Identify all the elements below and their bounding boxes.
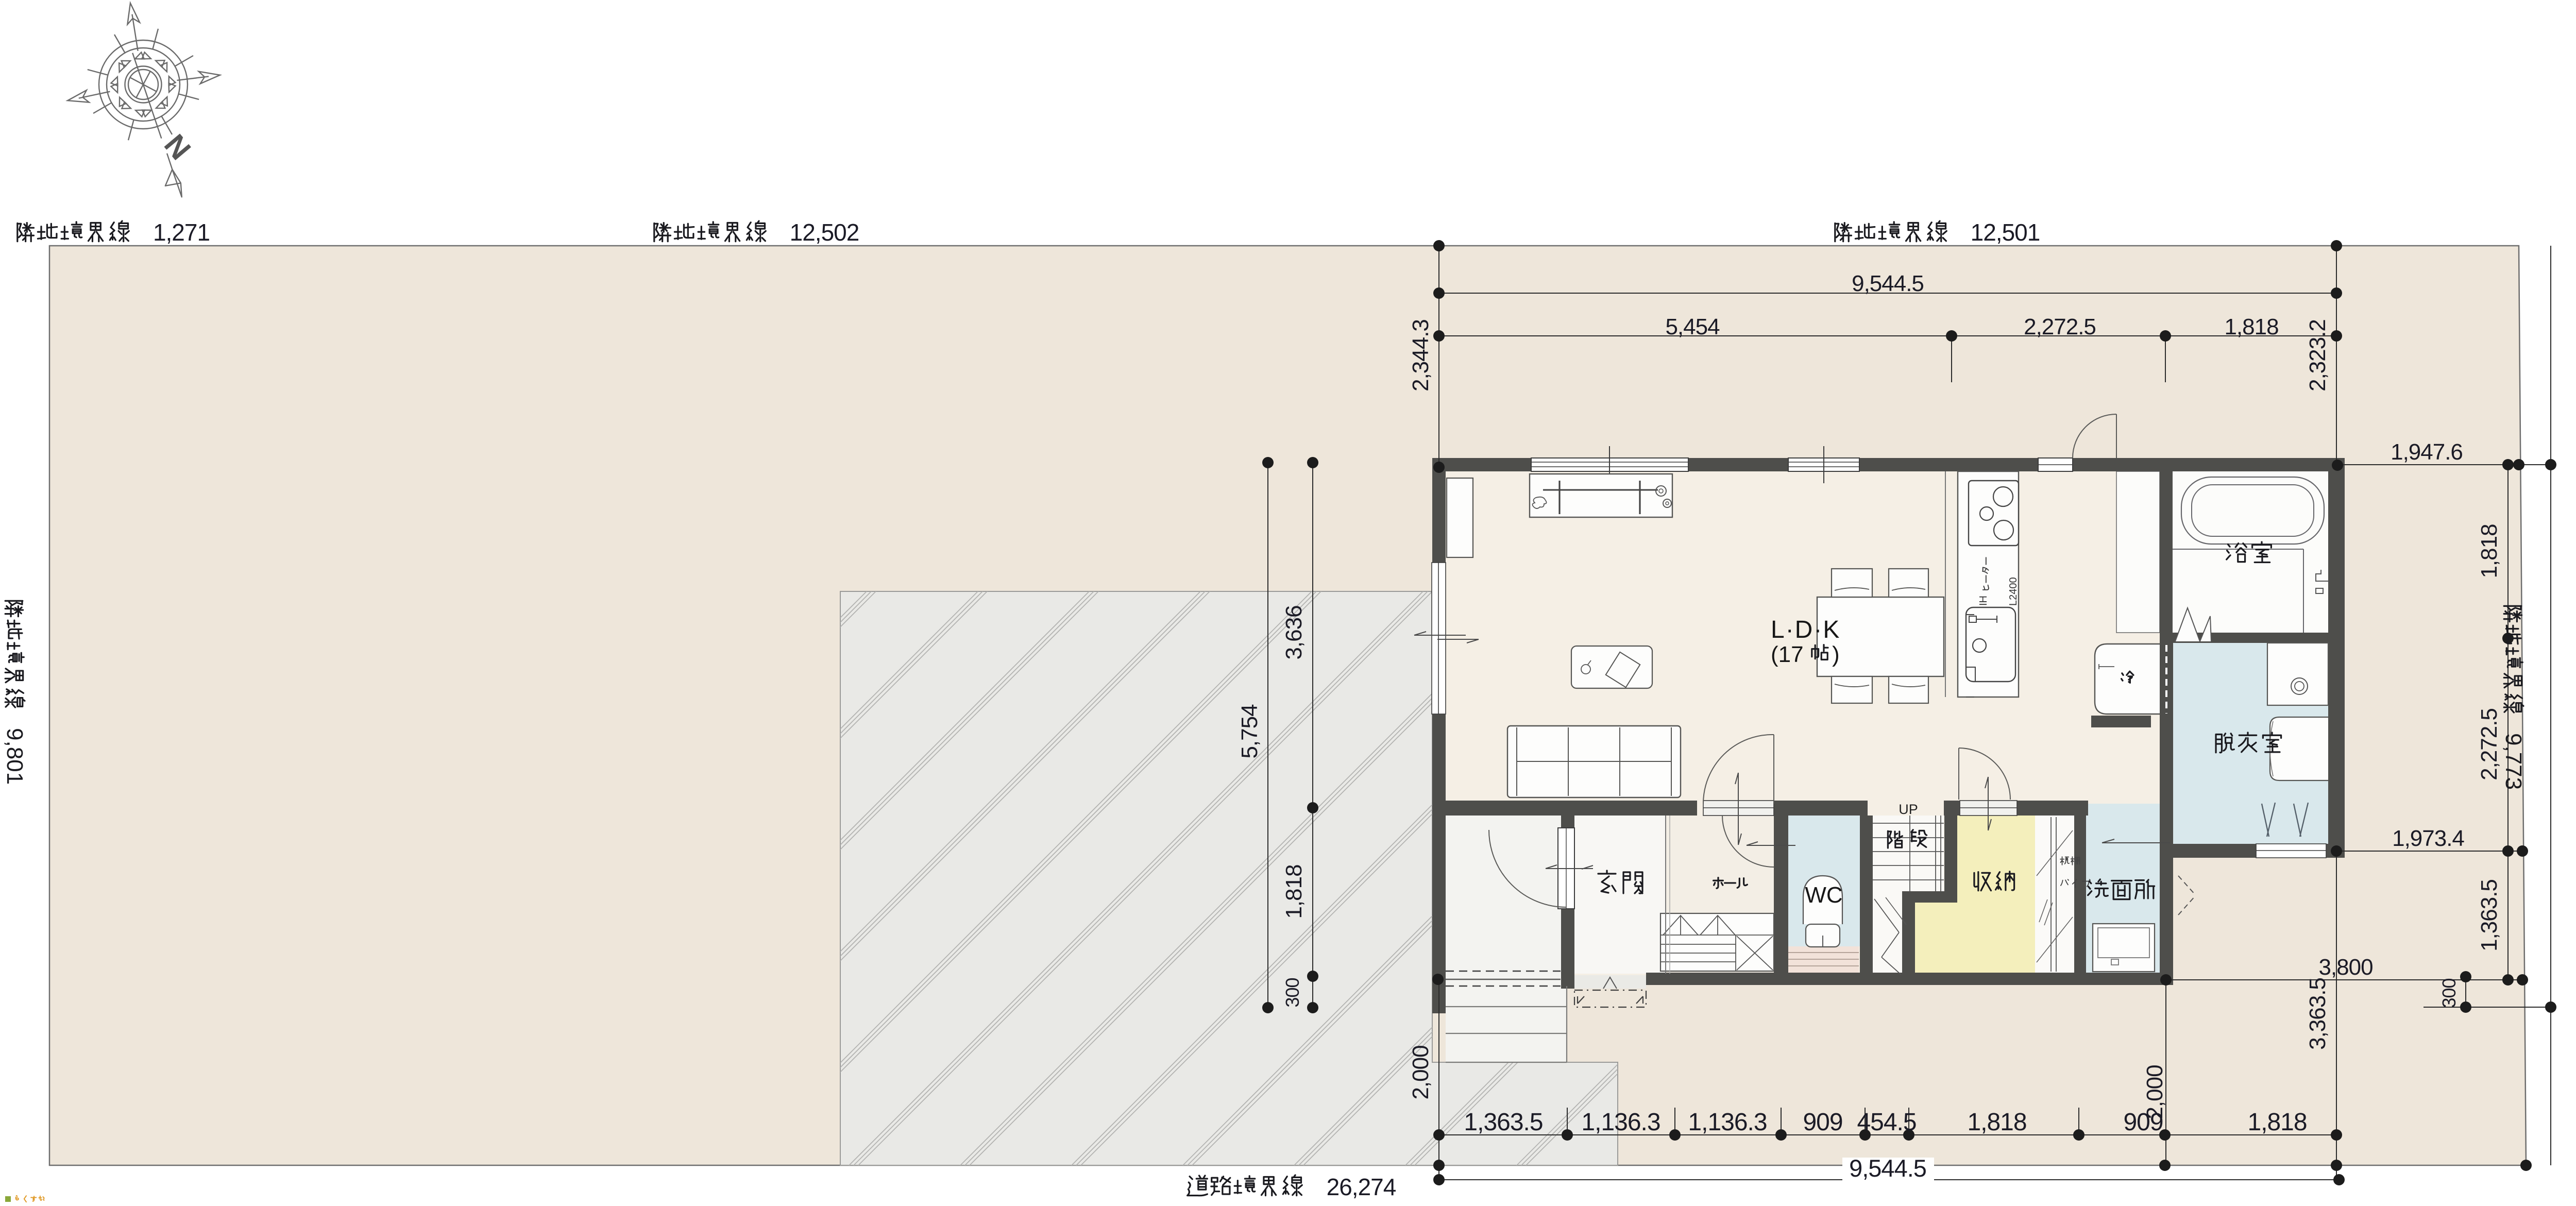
svg-text:1,818: 1,818 <box>2477 524 2502 578</box>
svg-text:1,136.3: 1,136.3 <box>1688 1109 1767 1136</box>
svg-text:9,773: 9,773 <box>2501 733 2526 790</box>
svg-text:5,454: 5,454 <box>1665 314 1720 339</box>
svg-text:WC: WC <box>1805 882 1842 908</box>
svg-text:300: 300 <box>2438 978 2460 1008</box>
svg-text:): ) <box>1832 642 1840 667</box>
svg-text:1,947.6: 1,947.6 <box>2391 439 2463 465</box>
svg-text:3,363.5: 3,363.5 <box>2305 978 2330 1050</box>
svg-text:2,344.3: 2,344.3 <box>1408 319 1433 392</box>
svg-text:L2400: L2400 <box>2008 577 2019 606</box>
svg-text:1,363.5: 1,363.5 <box>1464 1109 1543 1136</box>
svg-text:2,272.5: 2,272.5 <box>2024 314 2096 339</box>
svg-text:1,973.4: 1,973.4 <box>2392 826 2464 851</box>
svg-text:9,544.5: 9,544.5 <box>1852 271 1924 296</box>
svg-text:1,271: 1,271 <box>153 219 210 246</box>
svg-text:12,502: 12,502 <box>790 219 859 246</box>
svg-text:2,000: 2,000 <box>1408 1045 1433 1099</box>
svg-text:26,274: 26,274 <box>1327 1174 1396 1200</box>
svg-text:1,363.5: 1,363.5 <box>2477 879 2502 952</box>
svg-text:909: 909 <box>2123 1109 2163 1136</box>
svg-text:3,800: 3,800 <box>2318 955 2372 980</box>
svg-text:2,272.5: 2,272.5 <box>2477 708 2502 780</box>
svg-text:UP: UP <box>1899 802 1918 817</box>
svg-text:454.5: 454.5 <box>1857 1109 1916 1136</box>
svg-text:300: 300 <box>1282 978 1303 1007</box>
svg-text:9,801: 9,801 <box>2 728 27 785</box>
svg-text:L·D·K: L·D·K <box>1771 616 1840 643</box>
svg-text:9,544.5: 9,544.5 <box>1849 1154 1926 1182</box>
svg-text:2,323.2: 2,323.2 <box>2305 319 2330 392</box>
svg-text:1,818: 1,818 <box>2224 314 2278 339</box>
svg-text:1,818: 1,818 <box>2247 1109 2307 1136</box>
svg-text:1,136.3: 1,136.3 <box>1581 1109 1660 1136</box>
svg-text:IH: IH <box>1978 596 1989 606</box>
svg-text:909: 909 <box>1803 1109 1842 1136</box>
svg-text:1,818: 1,818 <box>1967 1109 2026 1136</box>
svg-text:1,818: 1,818 <box>1281 864 1307 919</box>
svg-text:(17: (17 <box>1771 642 1804 667</box>
svg-text:N: N <box>158 128 197 166</box>
svg-text:3,636: 3,636 <box>1281 605 1307 659</box>
svg-text:5,754: 5,754 <box>1237 704 1262 759</box>
svg-text:12,501: 12,501 <box>1971 219 2040 246</box>
